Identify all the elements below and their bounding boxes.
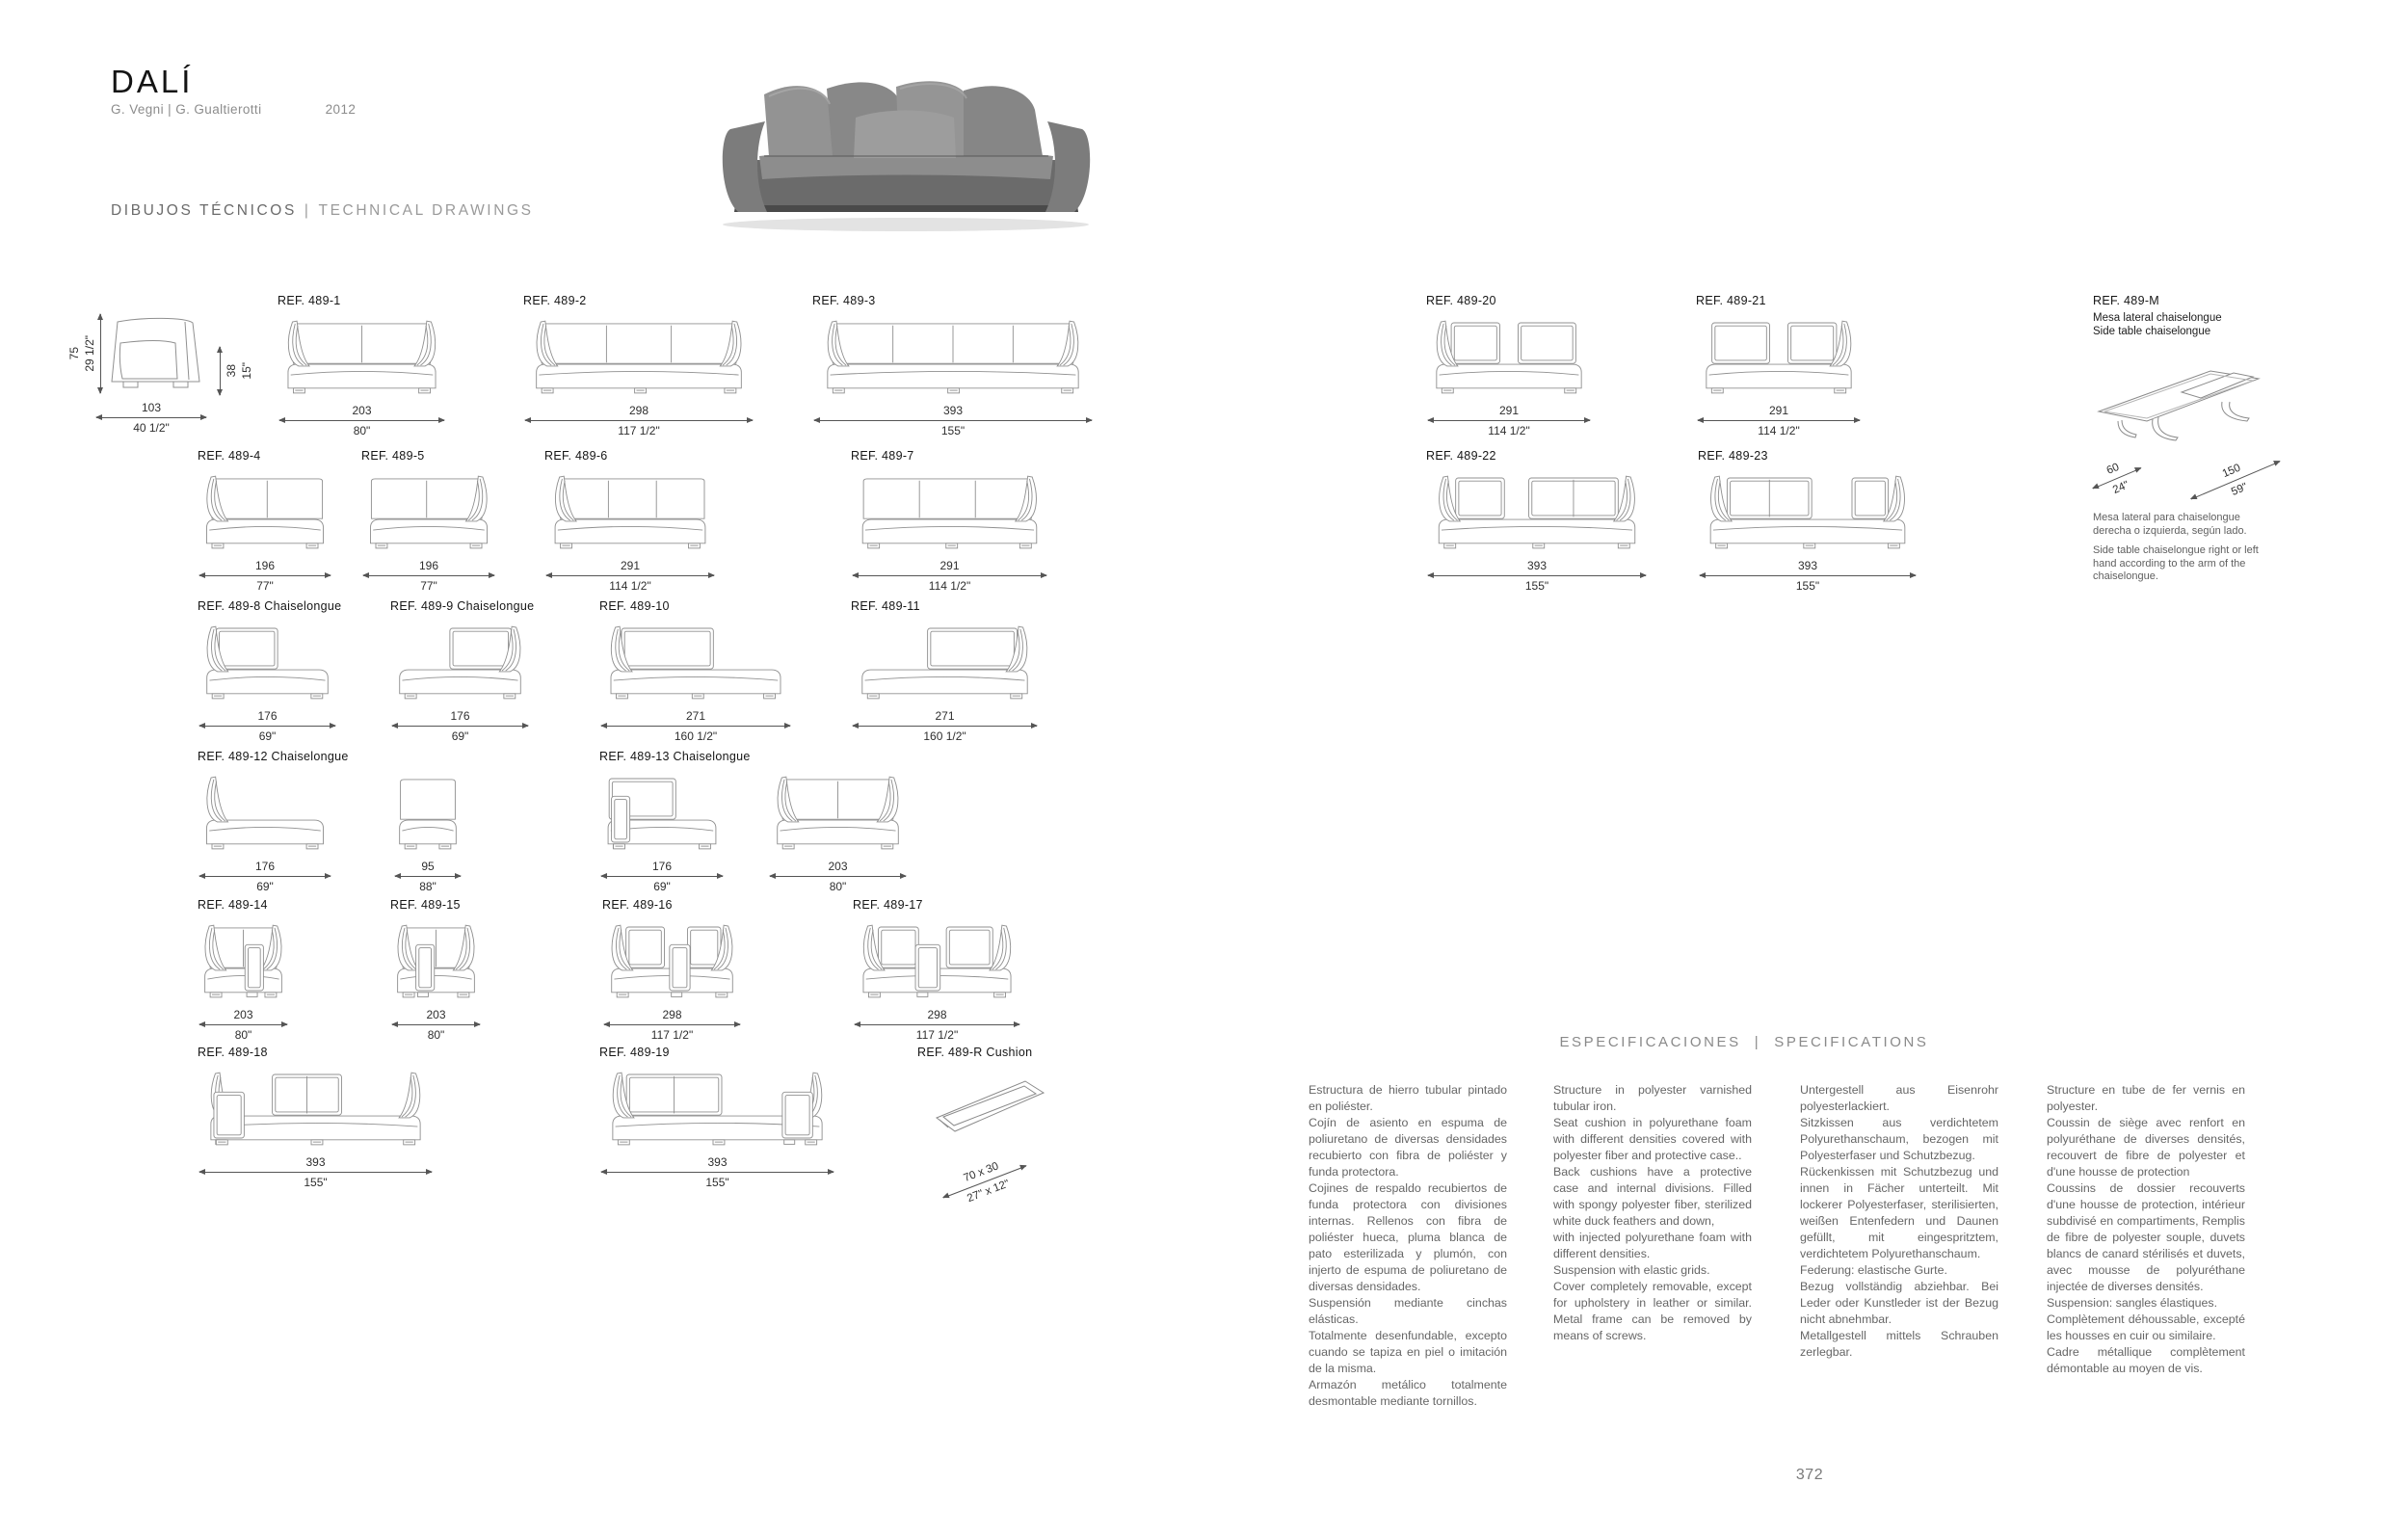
ref-label: REF. 489-7	[851, 449, 1048, 464]
dim-cm: 176	[198, 860, 332, 873]
dim-cm: 176	[198, 709, 337, 723]
dimension: 20380"	[198, 1008, 289, 1042]
sofa-line-drawing	[1696, 312, 1862, 397]
ref-label: REF. 489-15	[390, 898, 482, 914]
dimension: 393155"	[599, 1155, 835, 1189]
sofa-line-drawing	[599, 1064, 835, 1149]
ref-label: REF. 489-21	[1696, 294, 1862, 309]
ref-label: REF. 489-12 Chaiselongue	[198, 750, 332, 765]
sofa-line-drawing	[198, 1064, 434, 1149]
drawing-489-13b: 20380"	[768, 750, 908, 893]
sofa-line-drawing	[198, 768, 332, 853]
dim-inches: 160 1/2"	[851, 729, 1039, 743]
drawing-489-5: REF. 489-519677"	[361, 449, 496, 593]
dimension: 17669"	[599, 860, 725, 893]
drawing-489-4: REF. 489-419677"	[198, 449, 332, 593]
sofa-line-drawing	[544, 467, 716, 552]
cushion-drawing	[927, 1073, 1054, 1147]
spec-heading-separator: |	[1755, 1034, 1761, 1050]
header: DALÍ G. Vegni | G. Gualtierotti 2012	[111, 66, 356, 117]
drawing-489-6: REF. 489-6291114 1/2"	[544, 449, 716, 593]
dim-inches: 117 1/2"	[523, 424, 754, 437]
drawing-489-20: REF. 489-20291114 1/2"	[1426, 294, 1592, 437]
sofa-line-drawing	[599, 768, 725, 853]
product-title: DALÍ	[111, 66, 356, 98]
dim-inches: 69"	[390, 729, 530, 743]
sofa-line-drawing	[198, 916, 289, 1001]
drawing-489-22: REF. 489-22393155"	[1426, 449, 1648, 593]
spec-column-spanish: Estructura de hierro tubular pintado en …	[1309, 1082, 1507, 1410]
dim-height-in: 29 1/2"	[83, 335, 96, 372]
dim-inches: 155"	[198, 1176, 434, 1189]
ref-label: REF. 489-17	[853, 898, 1021, 914]
drawing-489-15: REF. 489-1520380"	[390, 898, 482, 1042]
dim-cm: 291	[851, 559, 1048, 572]
dim-line	[855, 1024, 1019, 1025]
dim-cm: 196	[361, 559, 496, 572]
ref-label: REF. 489-2	[523, 294, 754, 309]
dim-cm: 393	[1698, 559, 1918, 572]
dim-cm: 271	[599, 709, 792, 723]
dim-cm: 196	[198, 559, 332, 572]
ref-label: REF. 489-18	[198, 1046, 434, 1061]
dim-inches: 69"	[198, 880, 332, 893]
dim-inches: 88"	[393, 880, 463, 893]
dim-inches: 114 1/2"	[1696, 424, 1862, 437]
designer-names: G. Vegni | G. Gualtierotti	[111, 102, 261, 117]
ref-label: REF. 489-13 Chaiselongue	[599, 750, 725, 765]
dimension: 20380"	[390, 1008, 482, 1042]
dim-cm: 176	[390, 709, 530, 723]
dimension: 20380"	[768, 860, 908, 893]
dimension: 19677"	[198, 559, 332, 593]
dim-table-depth: 60 24"	[2084, 452, 2149, 505]
sofa-line-drawing	[602, 916, 742, 1001]
sofa-line-drawing	[390, 618, 530, 702]
dimension: 393155"	[1426, 559, 1648, 593]
ref-label: REF. 489-1	[278, 294, 446, 309]
ref-label: REF. 489-16	[602, 898, 742, 914]
drawing-489-19: REF. 489-19393155"	[599, 1046, 835, 1189]
dim-inches: 77"	[198, 579, 332, 593]
dimension: 17669"	[198, 709, 337, 743]
sofa-line-drawing	[1426, 312, 1592, 397]
dim-depth: 103 40 1/2"	[94, 401, 208, 435]
sofa-line-drawing	[812, 312, 1094, 397]
dim-cushion: 70 x 30 27" x 12"	[936, 1150, 1034, 1214]
sofa-line-drawing	[198, 467, 332, 552]
dim-inches: 80"	[390, 1028, 482, 1042]
dim-cm: 291	[1426, 404, 1592, 417]
sofa-line-drawing	[523, 312, 754, 397]
dimension: 393155"	[1698, 559, 1918, 593]
drawing-side-view: 75 29 1/2" 38 15" 103 40 1/2"	[67, 306, 260, 441]
dimension: 291114 1/2"	[851, 559, 1048, 593]
design-year: 2012	[326, 102, 357, 117]
dim-inches: 80"	[198, 1028, 289, 1042]
spec-column-french: Structure en tube de fer vernis en polye…	[2047, 1082, 2245, 1377]
ref-label: REF. 489-R Cushion	[917, 1046, 1100, 1061]
dim-cm: 271	[851, 709, 1039, 723]
drawing-489-23: REF. 489-23393155"	[1698, 449, 1918, 593]
drawing-489-14: REF. 489-1420380"	[198, 898, 289, 1042]
dim-cm: 291	[1696, 404, 1862, 417]
sofa-side-view-drawing	[100, 314, 210, 395]
sofa-line-drawing	[768, 768, 908, 853]
dim-inches: 117 1/2"	[853, 1028, 1021, 1042]
side-table-note-en: Side table chaiselongue right or left ha…	[2093, 544, 2266, 584]
dim-inches: 69"	[599, 880, 725, 893]
dim-line	[601, 876, 723, 877]
dim-inches: 69"	[198, 729, 337, 743]
dimension: 298117 1/2"	[523, 404, 754, 437]
sofa-line-drawing	[361, 467, 496, 552]
dim-cm: 393	[1426, 559, 1648, 572]
drawing-489-7: REF. 489-7291114 1/2"	[851, 449, 1048, 593]
drawing-489-21: REF. 489-21291114 1/2"	[1696, 294, 1862, 437]
sofa-line-drawing	[851, 618, 1039, 702]
dim-line	[199, 575, 331, 576]
sofa-line-drawing	[278, 312, 446, 397]
dim-inches: 114 1/2"	[1426, 424, 1592, 437]
drawing-489-1: REF. 489-120380"	[278, 294, 446, 437]
dim-cm: 203	[278, 404, 446, 417]
dim-inches: 117 1/2"	[602, 1028, 742, 1042]
drawing-489-12: REF. 489-12 Chaiselongue17669"	[198, 750, 332, 893]
dim-inches: 80"	[768, 880, 908, 893]
specifications-heading: ESPECIFICACIONES|SPECIFICATIONS	[1407, 1034, 2081, 1050]
spec-heading-es: ESPECIFICACIONES	[1559, 1034, 1740, 1050]
ref-label: REF. 489-19	[599, 1046, 835, 1061]
dim-line	[220, 347, 221, 395]
dim-inches: 77"	[361, 579, 496, 593]
ref-label: REF. 489-6	[544, 449, 716, 464]
sofa-line-drawing	[599, 618, 792, 702]
drawing-489-9: REF. 489-9 Chaiselongue17669"	[390, 599, 530, 743]
ref-label	[393, 750, 463, 765]
heading-separator: |	[304, 202, 311, 219]
dim-line	[395, 876, 461, 877]
dim-line	[1700, 575, 1916, 576]
dim-inches: 155"	[1426, 579, 1648, 593]
page-number: 372	[1781, 1467, 1839, 1484]
dim-line	[199, 1172, 432, 1173]
dim-depth-in: 40 1/2"	[94, 421, 208, 435]
section-heading: DIBUJOS TÉCNICOS|TECHNICAL DRAWINGS	[111, 202, 534, 220]
dim-seat-in: 15"	[240, 362, 253, 380]
drawing-489-8: REF. 489-8 Chaiselongue17669"	[198, 599, 337, 743]
dim-cm: 393	[599, 1155, 835, 1169]
ref-label	[768, 750, 908, 765]
dim-line	[853, 575, 1046, 576]
sofa-line-drawing	[1426, 467, 1648, 552]
side-table-note-es: Mesa lateral para chaiselongue derecha o…	[2093, 512, 2266, 538]
dim-cm: 203	[198, 1008, 289, 1021]
dim-cm: 393	[198, 1155, 434, 1169]
dim-seat-cm: 38	[225, 364, 238, 377]
sofa-line-drawing	[1698, 467, 1918, 552]
dimension: 298117 1/2"	[602, 1008, 742, 1042]
dim-line	[546, 575, 714, 576]
drawing-489-3: REF. 489-3393155"	[812, 294, 1094, 437]
dimension: 291114 1/2"	[544, 559, 716, 593]
dim-cm: 393	[812, 404, 1094, 417]
dim-line	[1698, 420, 1860, 421]
spec-heading-en: SPECIFICATIONS	[1774, 1034, 1928, 1050]
dim-cm: 203	[390, 1008, 482, 1021]
dim-cm: 291	[544, 559, 716, 572]
dim-inches: 155"	[1698, 579, 1918, 593]
ref-label: REF. 489-10	[599, 599, 792, 615]
dim-height-cm: 75	[67, 347, 81, 359]
dim-cm: 95	[393, 860, 463, 873]
drawing-489-18: REF. 489-18393155"	[198, 1046, 434, 1189]
dim-line	[392, 726, 528, 727]
drawing-489-17: REF. 489-17298117 1/2"	[853, 898, 1021, 1042]
dimension: 291114 1/2"	[1696, 404, 1862, 437]
dim-line	[525, 420, 753, 421]
ref-label: REF. 489-8 Chaiselongue	[198, 599, 337, 615]
ref-label: REF. 489-23	[1698, 449, 1918, 464]
dim-cm: 298	[602, 1008, 742, 1021]
ref-label: REF. 489-9 Chaiselongue	[390, 599, 530, 615]
dim-line	[601, 1172, 834, 1173]
spec-column-english: Structure in polyester varnished tubular…	[1553, 1082, 1752, 1344]
dim-inches: 155"	[812, 424, 1094, 437]
sofa-line-drawing	[393, 768, 463, 853]
ref-label: REF. 489-M	[2093, 294, 2295, 309]
dim-cm: 176	[599, 860, 725, 873]
catalog-page: DALÍ G. Vegni | G. Gualtierotti 2012 DIB…	[0, 0, 2408, 1537]
drawing-489-16: REF. 489-16298117 1/2"	[602, 898, 742, 1042]
dim-cm: 298	[853, 1008, 1021, 1021]
dimension: 393155"	[198, 1155, 434, 1189]
dim-line	[601, 726, 790, 727]
designers-line: G. Vegni | G. Gualtierotti 2012	[111, 102, 356, 117]
dimension: 271160 1/2"	[599, 709, 792, 743]
drawing-489-12b: 9588"	[393, 750, 463, 893]
drawing-489-2: REF. 489-2298117 1/2"	[523, 294, 754, 437]
drawing-489-R: REF. 489-R Cushion 70 x 30 27" x 12"	[917, 1046, 1100, 1199]
ref-label: REF. 489-14	[198, 898, 289, 914]
dim-inches: 114 1/2"	[544, 579, 716, 593]
dim-line	[814, 420, 1092, 421]
drawing-489-11: REF. 489-11271160 1/2"	[851, 599, 1039, 743]
dim-seat-height: 38 15"	[216, 347, 253, 395]
dim-depth-cm: 103	[94, 401, 208, 414]
ref-label: REF. 489-20	[1426, 294, 1592, 309]
dim-cm: 298	[523, 404, 754, 417]
dim-line	[1428, 420, 1590, 421]
dim-inches: 160 1/2"	[599, 729, 792, 743]
dim-table-length: 150 59"	[2183, 445, 2288, 516]
section-heading-es: DIBUJOS TÉCNICOS	[111, 202, 297, 219]
sofa-photo	[711, 67, 1101, 233]
dim-inches: 155"	[599, 1176, 835, 1189]
dimension: 271160 1/2"	[851, 709, 1039, 743]
dim-inches: 114 1/2"	[851, 579, 1048, 593]
dim-line	[96, 417, 206, 418]
dim-line	[363, 575, 494, 576]
ref-label: REF. 489-5	[361, 449, 496, 464]
spec-column-german: Untergestell aus Eisenrohr polyesterlack…	[1800, 1082, 1998, 1361]
ref-label: REF. 489-11	[851, 599, 1039, 615]
dim-line	[604, 1024, 740, 1025]
dim-line	[279, 420, 444, 421]
dimension: 9588"	[393, 860, 463, 893]
dim-line	[1428, 575, 1646, 576]
section-heading-en: TECHNICAL DRAWINGS	[319, 202, 534, 219]
dim-line	[770, 876, 906, 877]
dimension: 17669"	[390, 709, 530, 743]
side-table-name-es: Mesa lateral chaiselongue	[2093, 312, 2295, 326]
sofa-line-drawing	[198, 618, 337, 702]
dimension: 17669"	[198, 860, 332, 893]
dim-cm: 203	[768, 860, 908, 873]
drawing-489-13: REF. 489-13 Chaiselongue17669"	[599, 750, 725, 893]
dimension: 20380"	[278, 404, 446, 437]
dimension: 393155"	[812, 404, 1094, 437]
drawing-489-10: REF. 489-10271160 1/2"	[599, 599, 792, 743]
dim-inches: 80"	[278, 424, 446, 437]
ref-label: REF. 489-3	[812, 294, 1094, 309]
side-table-name-en: Side table chaiselongue	[2093, 326, 2295, 339]
ref-label: REF. 489-22	[1426, 449, 1648, 464]
dim-line	[199, 876, 331, 877]
drawing-489-M: REF. 489-M Mesa lateral chaiselongue Sid…	[2093, 294, 2295, 591]
sofa-line-drawing	[851, 467, 1048, 552]
dim-line	[199, 1024, 287, 1025]
ref-label: REF. 489-4	[198, 449, 332, 464]
dim-line	[853, 726, 1037, 727]
dimension: 19677"	[361, 559, 496, 593]
dim-height: 75 29 1/2"	[67, 314, 105, 393]
dimension: 291114 1/2"	[1426, 404, 1592, 437]
dim-line	[100, 314, 101, 393]
dim-line	[392, 1024, 480, 1025]
sofa-line-drawing	[853, 916, 1021, 1001]
dim-line	[199, 726, 335, 727]
dimension: 298117 1/2"	[853, 1008, 1021, 1042]
sofa-line-drawing	[390, 916, 482, 1001]
side-table-drawing	[2093, 354, 2281, 455]
